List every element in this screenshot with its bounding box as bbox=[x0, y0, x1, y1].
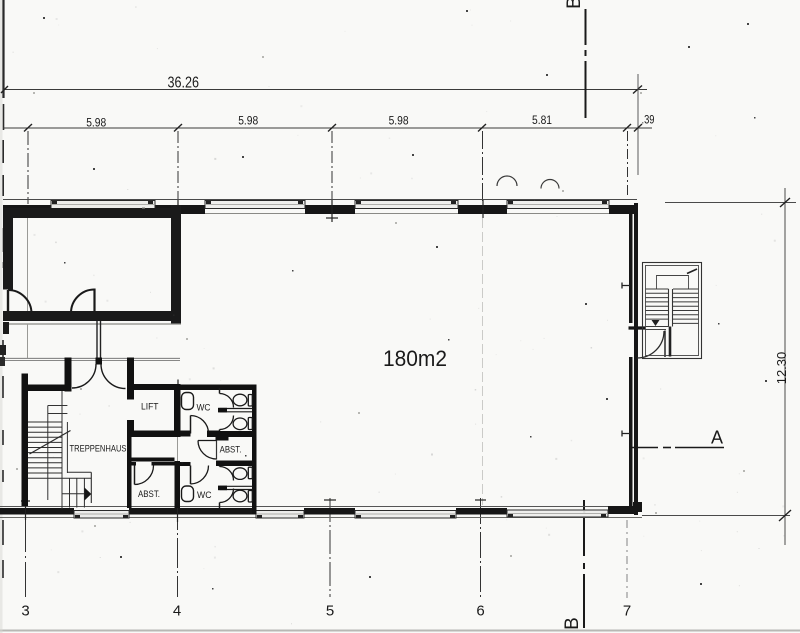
svg-text:36.26: 36.26 bbox=[168, 75, 200, 92]
svg-text:WC: WC bbox=[197, 490, 212, 500]
svg-text:5.98: 5.98 bbox=[238, 114, 258, 128]
svg-text:A: A bbox=[711, 428, 723, 448]
svg-text:WC: WC bbox=[197, 402, 211, 412]
svg-text:4: 4 bbox=[173, 603, 181, 620]
svg-text:ABST.: ABST. bbox=[138, 489, 160, 499]
svg-text:TREPPENHAUS: TREPPENHAUS bbox=[70, 443, 127, 453]
svg-text:12.30: 12.30 bbox=[774, 352, 789, 385]
svg-text:ABST.: ABST. bbox=[220, 444, 242, 454]
svg-text:5.98: 5.98 bbox=[86, 116, 106, 130]
svg-text:5: 5 bbox=[326, 603, 334, 620]
svg-text:B: B bbox=[564, 0, 585, 9]
svg-text:.39: .39 bbox=[642, 113, 655, 127]
svg-text:LIFT: LIFT bbox=[141, 402, 159, 412]
svg-text:B: B bbox=[562, 617, 583, 630]
svg-text:5.81: 5.81 bbox=[532, 113, 552, 127]
svg-text:5.98: 5.98 bbox=[389, 114, 409, 128]
svg-text:3: 3 bbox=[21, 603, 29, 620]
svg-text:180m2: 180m2 bbox=[383, 346, 447, 371]
svg-text:7: 7 bbox=[623, 603, 631, 620]
svg-text:6: 6 bbox=[476, 603, 484, 620]
